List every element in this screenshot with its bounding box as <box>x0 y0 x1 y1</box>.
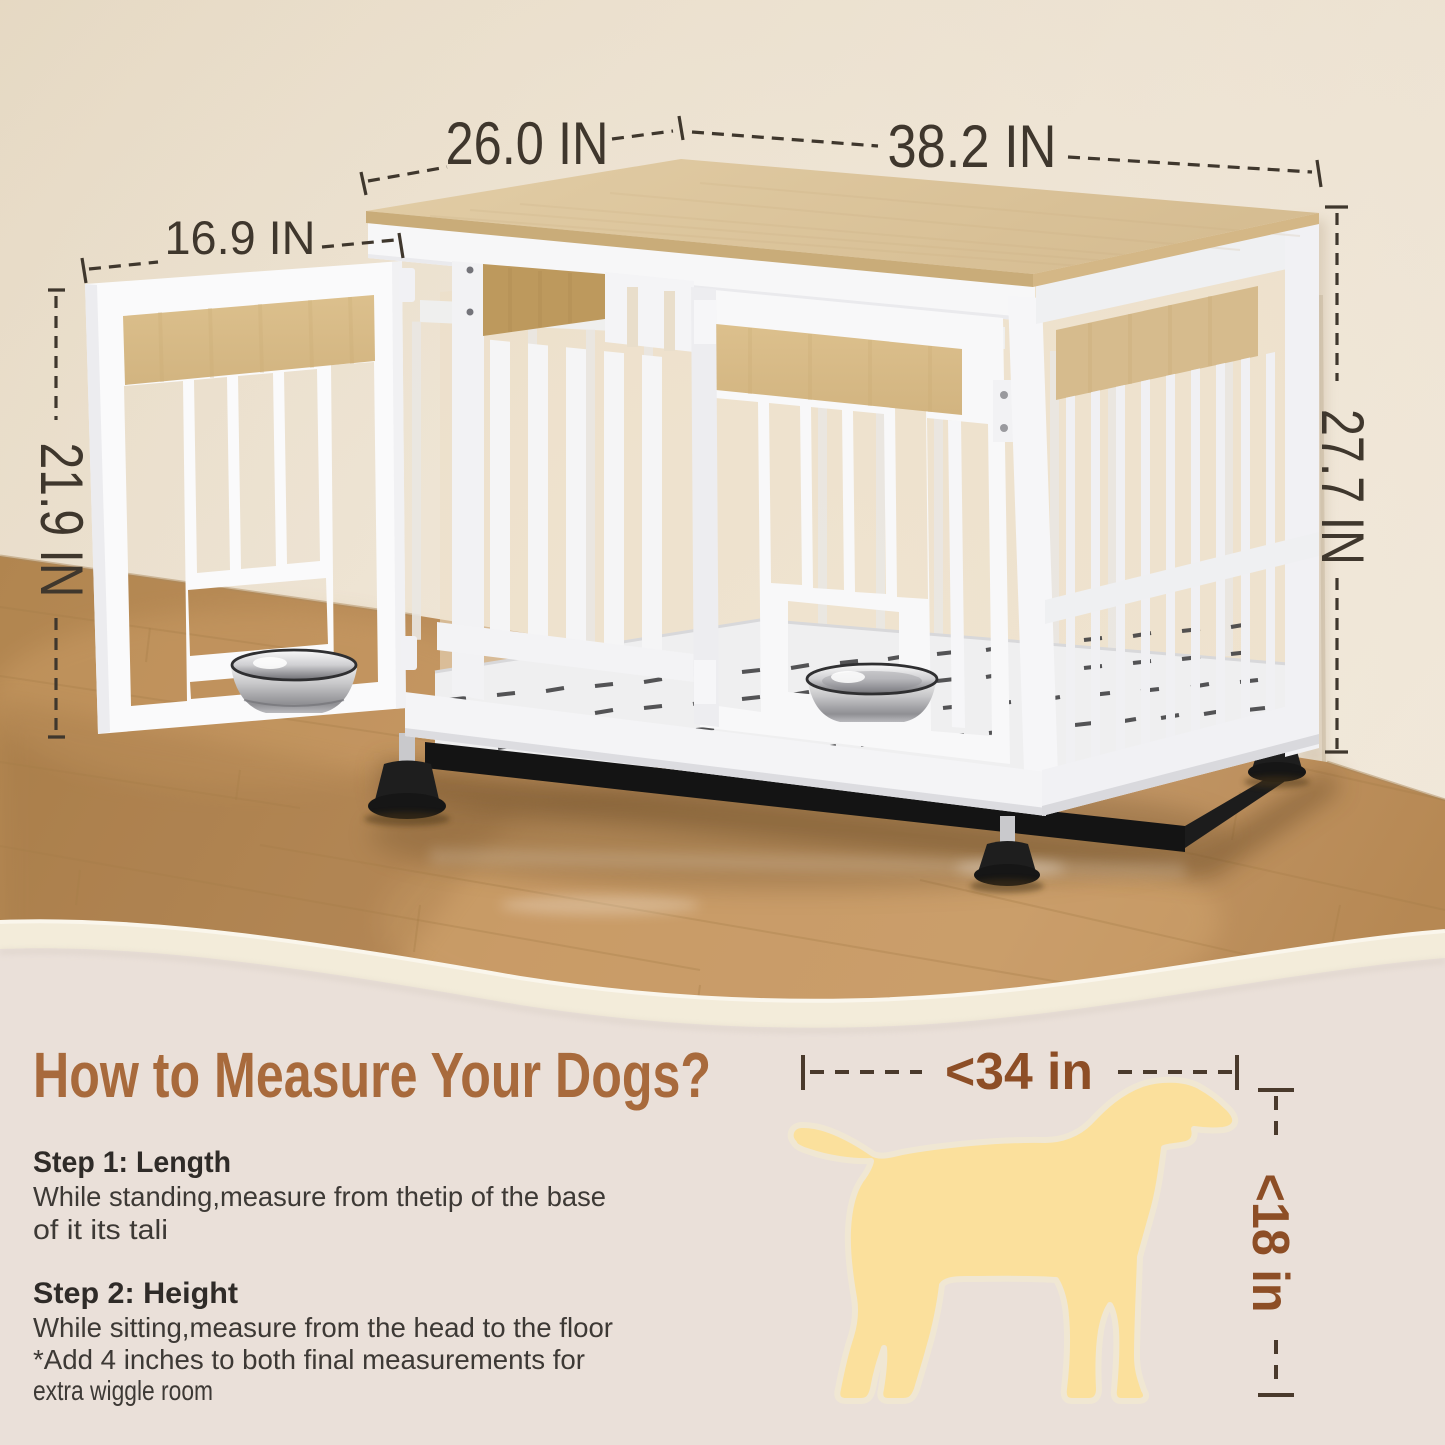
svg-text:While standing,measure from th: While standing,measure from thetip of th… <box>33 1181 606 1212</box>
svg-text:While sitting,measure from the: While sitting,measure from the head to t… <box>33 1312 613 1343</box>
svg-text:Step 2: Height: Step 2: Height <box>33 1277 238 1310</box>
svg-text:27.7 IN: 27.7 IN <box>1309 409 1376 565</box>
svg-text:How to Measure Your Dogs?: How to Measure Your Dogs? <box>33 1039 711 1111</box>
svg-text:16.9 IN: 16.9 IN <box>165 211 316 264</box>
svg-text:21.9 IN: 21.9 IN <box>28 443 95 598</box>
svg-text:extra wiggle room: extra wiggle room <box>33 1375 213 1406</box>
svg-text:Step 1: Length: Step 1: Length <box>33 1146 231 1179</box>
svg-text:38.2 IN: 38.2 IN <box>888 113 1057 180</box>
svg-text:<34 in: <34 in <box>945 1043 1093 1101</box>
svg-text:of it its tali: of it its tali <box>33 1214 168 1245</box>
svg-text:<18 in: <18 in <box>1241 1174 1299 1313</box>
svg-text:26.0 IN: 26.0 IN <box>446 110 609 177</box>
svg-text:*Add 4 inches to both final me: *Add 4 inches to both final measurements… <box>33 1344 585 1375</box>
